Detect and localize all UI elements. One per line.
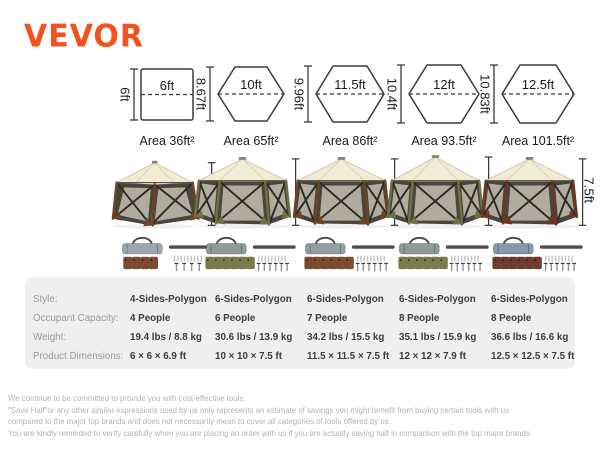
table-row-style: Style: 4-Sides-Polygon 6-Sides-Polygon 6… [33,290,575,309]
carry-bag-icon [122,238,162,254]
cell-value: 6 People [215,309,307,328]
cell-value: 30.6 lbs / 13.9 kg [215,328,307,347]
row-label: Style: [33,290,130,309]
width-label: 11.5ft [334,77,366,92]
height-label: 6ft [117,87,132,102]
carry-bag-icon [305,238,345,254]
accessories-illustration [396,234,492,272]
pouches-icon [205,257,254,269]
disclaimer-line: You are kindly reminded to verify carefu… [8,428,597,440]
row-label: Occupant Capacity: [33,309,130,328]
row-label: Product Dimensions: [33,347,130,366]
cell-value: 35.1 lbs / 15.9 kg [399,328,491,347]
height-label: 8.67ft [193,78,208,111]
pegs-icon [450,263,482,271]
area-label: Area 65ft² [196,134,306,148]
cell-value: 12.5 × 12.5 × 7.5 ft [491,347,575,366]
area-label: Area 101.5ft² [483,134,593,148]
pouches-icon [398,257,447,269]
row-label: Weight: [33,328,130,347]
cell-value: 6 × 6 × 6.9 ft [130,347,215,366]
height-label: 9.96ft [291,78,306,111]
accessories-illustration [203,234,299,272]
cell-value: 4 People [130,309,215,328]
product-column-2: 10ft 8.67ft Area 65ft² 7.5ft [196,62,306,277]
width-label: 6ft [160,78,175,93]
stakes-icon [544,256,576,271]
disclaimer-line: We continue to be committed to provide y… [8,393,597,405]
cell-value: 7 People [307,309,399,328]
tent-illustration: 7.5ft [482,156,594,232]
width-label: 12.5ft [522,77,555,92]
table-row-weight: Weight: 19.4 lbs / 8.8 kg 30.6 lbs / 13.… [33,328,575,347]
pegs-icon [356,263,388,271]
product-column-5: 12.5ft 10.83ft Area 101.5ft² 7.5f [483,62,593,277]
pouches-icon [304,257,353,269]
cell-value: 6-Sides-Polygon [215,290,307,309]
cell-value: 34.2 lbs / 15.5 kg [307,328,399,347]
pouches-icon [492,257,541,269]
hexagon-footprint-diagram: 12.5ft 10.83ft [483,62,593,128]
height-label: 10.4ft [384,78,399,111]
cell-value: 19.4 lbs / 8.8 kg [130,328,215,347]
stakes-icon [356,256,388,271]
cell-value: 36.6 lbs / 16.6 kg [491,328,575,347]
cell-value: 10 × 10 × 7.5 ft [215,347,307,366]
height-label: 10.83ft [477,74,492,114]
accessories-illustration [302,234,398,272]
carry-bag-icon [493,238,533,254]
tent-height-label: 7.5ft [582,177,597,203]
cell-value: 6-Sides-Polygon [491,290,575,309]
cell-value: 11.5 × 11.5 × 7.5 ft [307,347,399,366]
disclaimer-text: We continue to be committed to provide y… [8,393,597,439]
pole-icon [253,245,296,248]
table-row-capacity: Occupant Capacity: 4 People 6 People 7 P… [33,309,575,328]
stakes-icon [257,256,289,271]
carry-bag-icon [206,238,246,254]
spec-table: Style: 4-Sides-Polygon 6-Sides-Polygon 6… [25,277,575,369]
cell-value: 6-Sides-Polygon [307,290,399,309]
disclaimer-line: compared to the major top brands and doe… [8,416,597,428]
width-label: 10ft [240,77,262,92]
disclaimer-line: "Save Half"or any other similar expressi… [8,405,597,417]
carry-bag-icon [399,238,439,254]
hexagon-footprint-diagram: 10ft 8.67ft [196,62,306,128]
stakes-icon [450,256,482,271]
tent-illustration: 7.5ft [195,156,307,232]
pegs-icon [257,263,289,271]
width-label: 12ft [433,77,455,92]
pegs-icon [544,263,576,271]
cell-value: 6-Sides-Polygon [399,290,491,309]
cell-value: 8 People [491,309,575,328]
cell-value: 4-Sides-Polygon [130,290,215,309]
vevor-logo: VEVOR [24,18,144,55]
cell-value: 12 × 12 × 7.9 ft [399,347,491,366]
pouches-icon [123,257,158,269]
cell-value: 8 People [399,309,491,328]
table-row-dimensions: Product Dimensions: 6 × 6 × 6.9 ft 10 × … [33,347,575,366]
accessories-illustration [490,234,586,272]
pole-icon [540,245,583,248]
